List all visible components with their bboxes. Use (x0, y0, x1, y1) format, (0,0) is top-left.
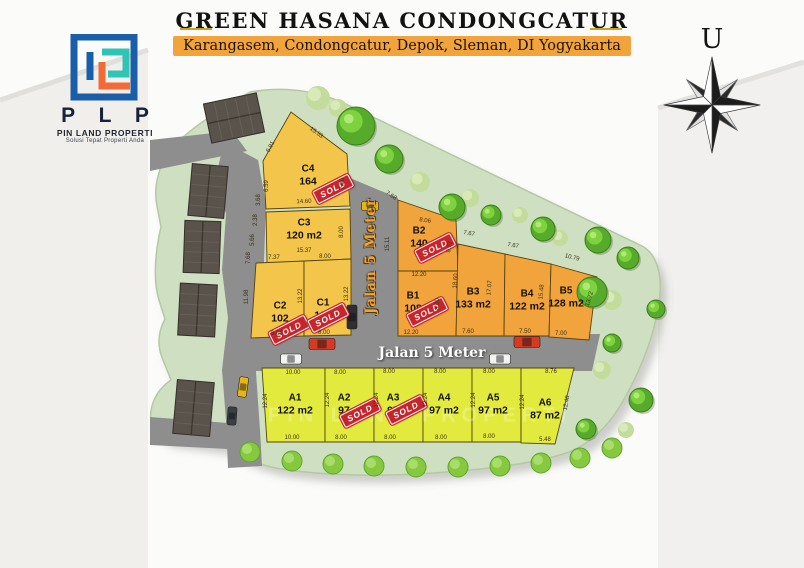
bush-icon (240, 442, 260, 462)
road-label-horizontal: Jalan 5 Meter (379, 345, 486, 361)
plot-shape-A3 (374, 368, 423, 442)
plot-shape-A4 (423, 368, 472, 442)
plot-shape-C1 (304, 259, 351, 336)
bush-icon (570, 448, 590, 468)
location-subtitle: Karangasem, Condongcatur, Depok, Sleman,… (173, 36, 631, 56)
plot-shape-C2 (251, 261, 304, 338)
bush-icon (323, 454, 343, 474)
bush-icon (406, 457, 426, 477)
bush-icon (448, 457, 468, 477)
bush-icon (602, 438, 622, 458)
plot-shape-B1 (398, 271, 458, 336)
logo-tagline: Solusi Tepat Properti Anda (40, 138, 170, 144)
house-roof-icon (188, 164, 228, 219)
plot-shape-A5 (472, 368, 521, 442)
foliage-icon (410, 172, 430, 192)
house-roof-icon (173, 379, 215, 436)
foliage-icon (593, 361, 611, 379)
red-car-icon (514, 337, 540, 348)
bush-icon (364, 456, 384, 476)
compass-star-icon (657, 53, 767, 157)
white-van-icon (281, 354, 302, 364)
bush-icon (282, 451, 302, 471)
dark-car-icon (347, 305, 357, 329)
house-roof-icon (178, 283, 218, 337)
plot-shape-A2 (325, 368, 374, 442)
white-van-icon (490, 354, 511, 364)
plot-shape-A1 (262, 368, 325, 442)
plp-logo-icon (66, 34, 144, 102)
logo-acronym: P L P (40, 104, 170, 128)
plot-shape-B3 (456, 244, 505, 336)
compass-north-label: U (657, 26, 767, 53)
title-flourish-left (180, 28, 212, 30)
foliage-icon (512, 207, 528, 223)
foliage-icon (306, 86, 330, 110)
bush-icon (531, 453, 551, 473)
compass-rose: U (657, 26, 767, 162)
tree-icon (629, 388, 655, 414)
foliage-icon (618, 422, 634, 438)
siteplan-poster: GREEN HASANA CONDONGCATUR Karangasem, Co… (0, 0, 804, 568)
bush-icon (490, 456, 510, 476)
red-car-icon (309, 339, 335, 350)
house-roof-icon (183, 220, 221, 273)
title-flourish-right (590, 28, 622, 30)
logo-company-name: PIN LAND PROPERTI (40, 128, 170, 138)
plot-shape-B4 (504, 254, 551, 336)
company-logo: P L P PIN LAND PROPERTI Solusi Tepat Pro… (40, 34, 170, 144)
plot-shape-C3 (266, 209, 351, 263)
road-label-vertical: Jalan 5 Meter (363, 198, 379, 314)
dark-van-icon (227, 407, 237, 426)
